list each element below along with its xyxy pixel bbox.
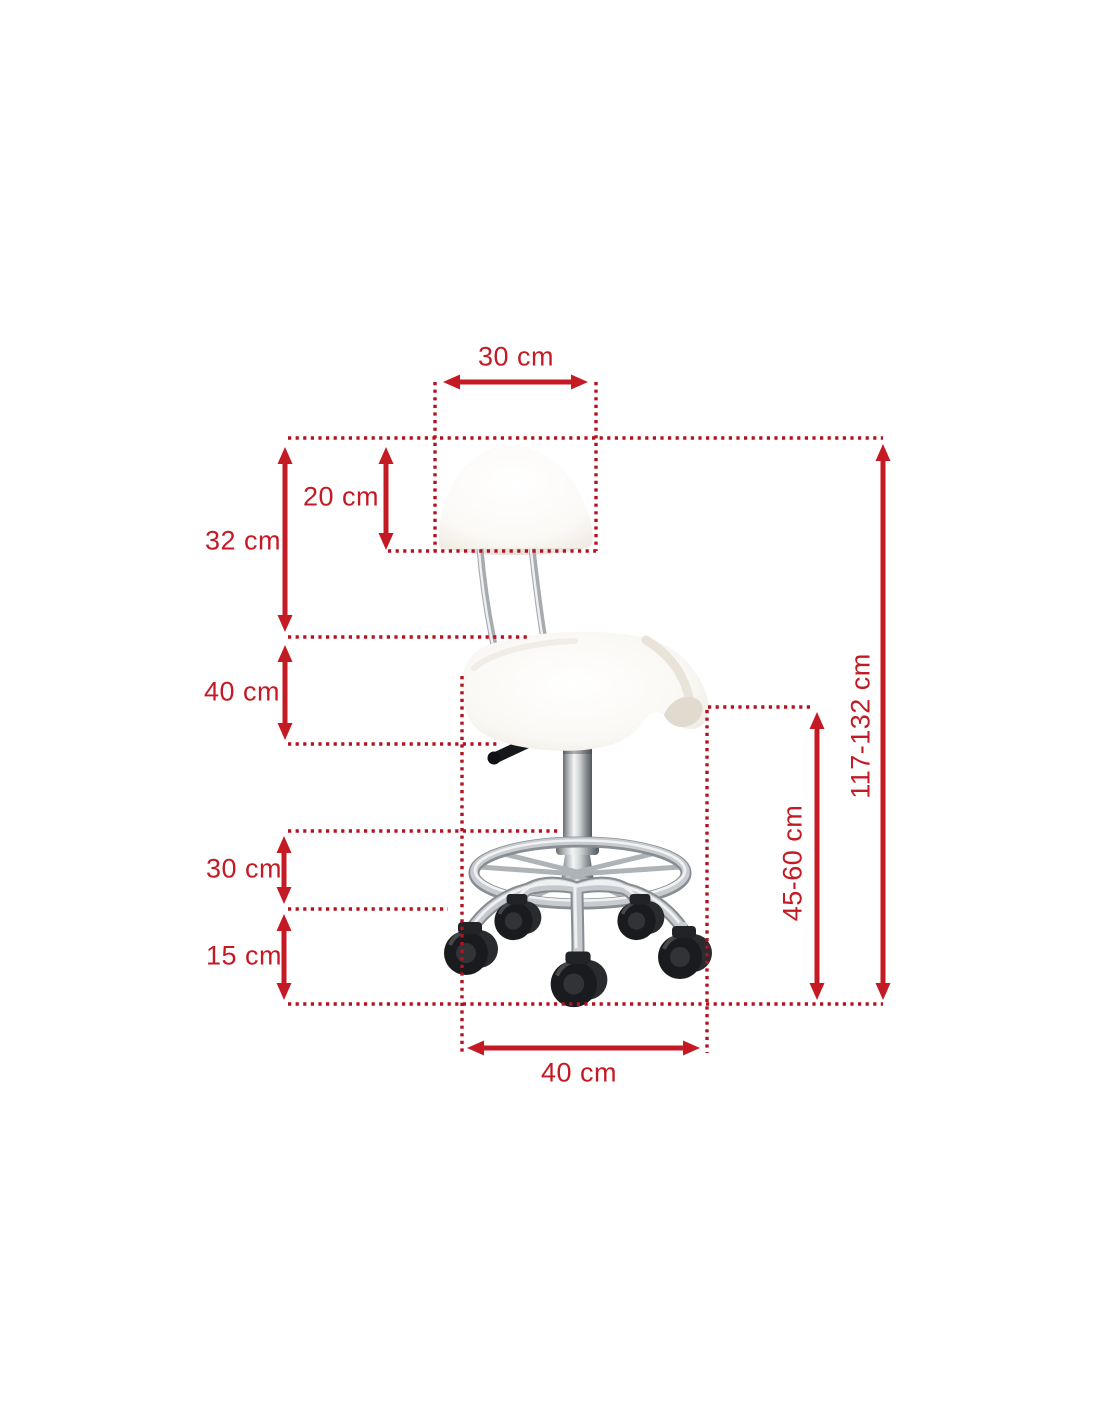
dim-label-backrest-height: 20 cm bbox=[303, 484, 379, 511]
dim-label-seat-height: 45-60 cm bbox=[780, 805, 807, 922]
dim-label-base-section-height: 15 cm bbox=[206, 943, 282, 970]
dim-label-base-width: 40 cm bbox=[541, 1060, 617, 1087]
stool-dimension-diagram: 30 cm 20 cm 32 cm 40 cm 30 cm 15 cm 45-6… bbox=[0, 0, 1100, 1422]
arrow-backrest-height bbox=[379, 447, 394, 550]
arrow-total-height bbox=[876, 444, 891, 1000]
arrow-seat-height bbox=[810, 712, 825, 1000]
arrow-base-width bbox=[467, 1041, 700, 1056]
dimension-lines bbox=[0, 0, 1100, 1422]
dim-label-backrest-section-height: 32 cm bbox=[205, 528, 281, 555]
dim-label-footrest-section-height: 30 cm bbox=[206, 856, 282, 883]
dim-label-total-height: 117-132 cm bbox=[848, 653, 875, 799]
arrow-backrest-width bbox=[443, 375, 588, 390]
dim-label-seat-section-height: 40 cm bbox=[204, 679, 280, 706]
dim-label-backrest-width: 30 cm bbox=[478, 344, 554, 371]
